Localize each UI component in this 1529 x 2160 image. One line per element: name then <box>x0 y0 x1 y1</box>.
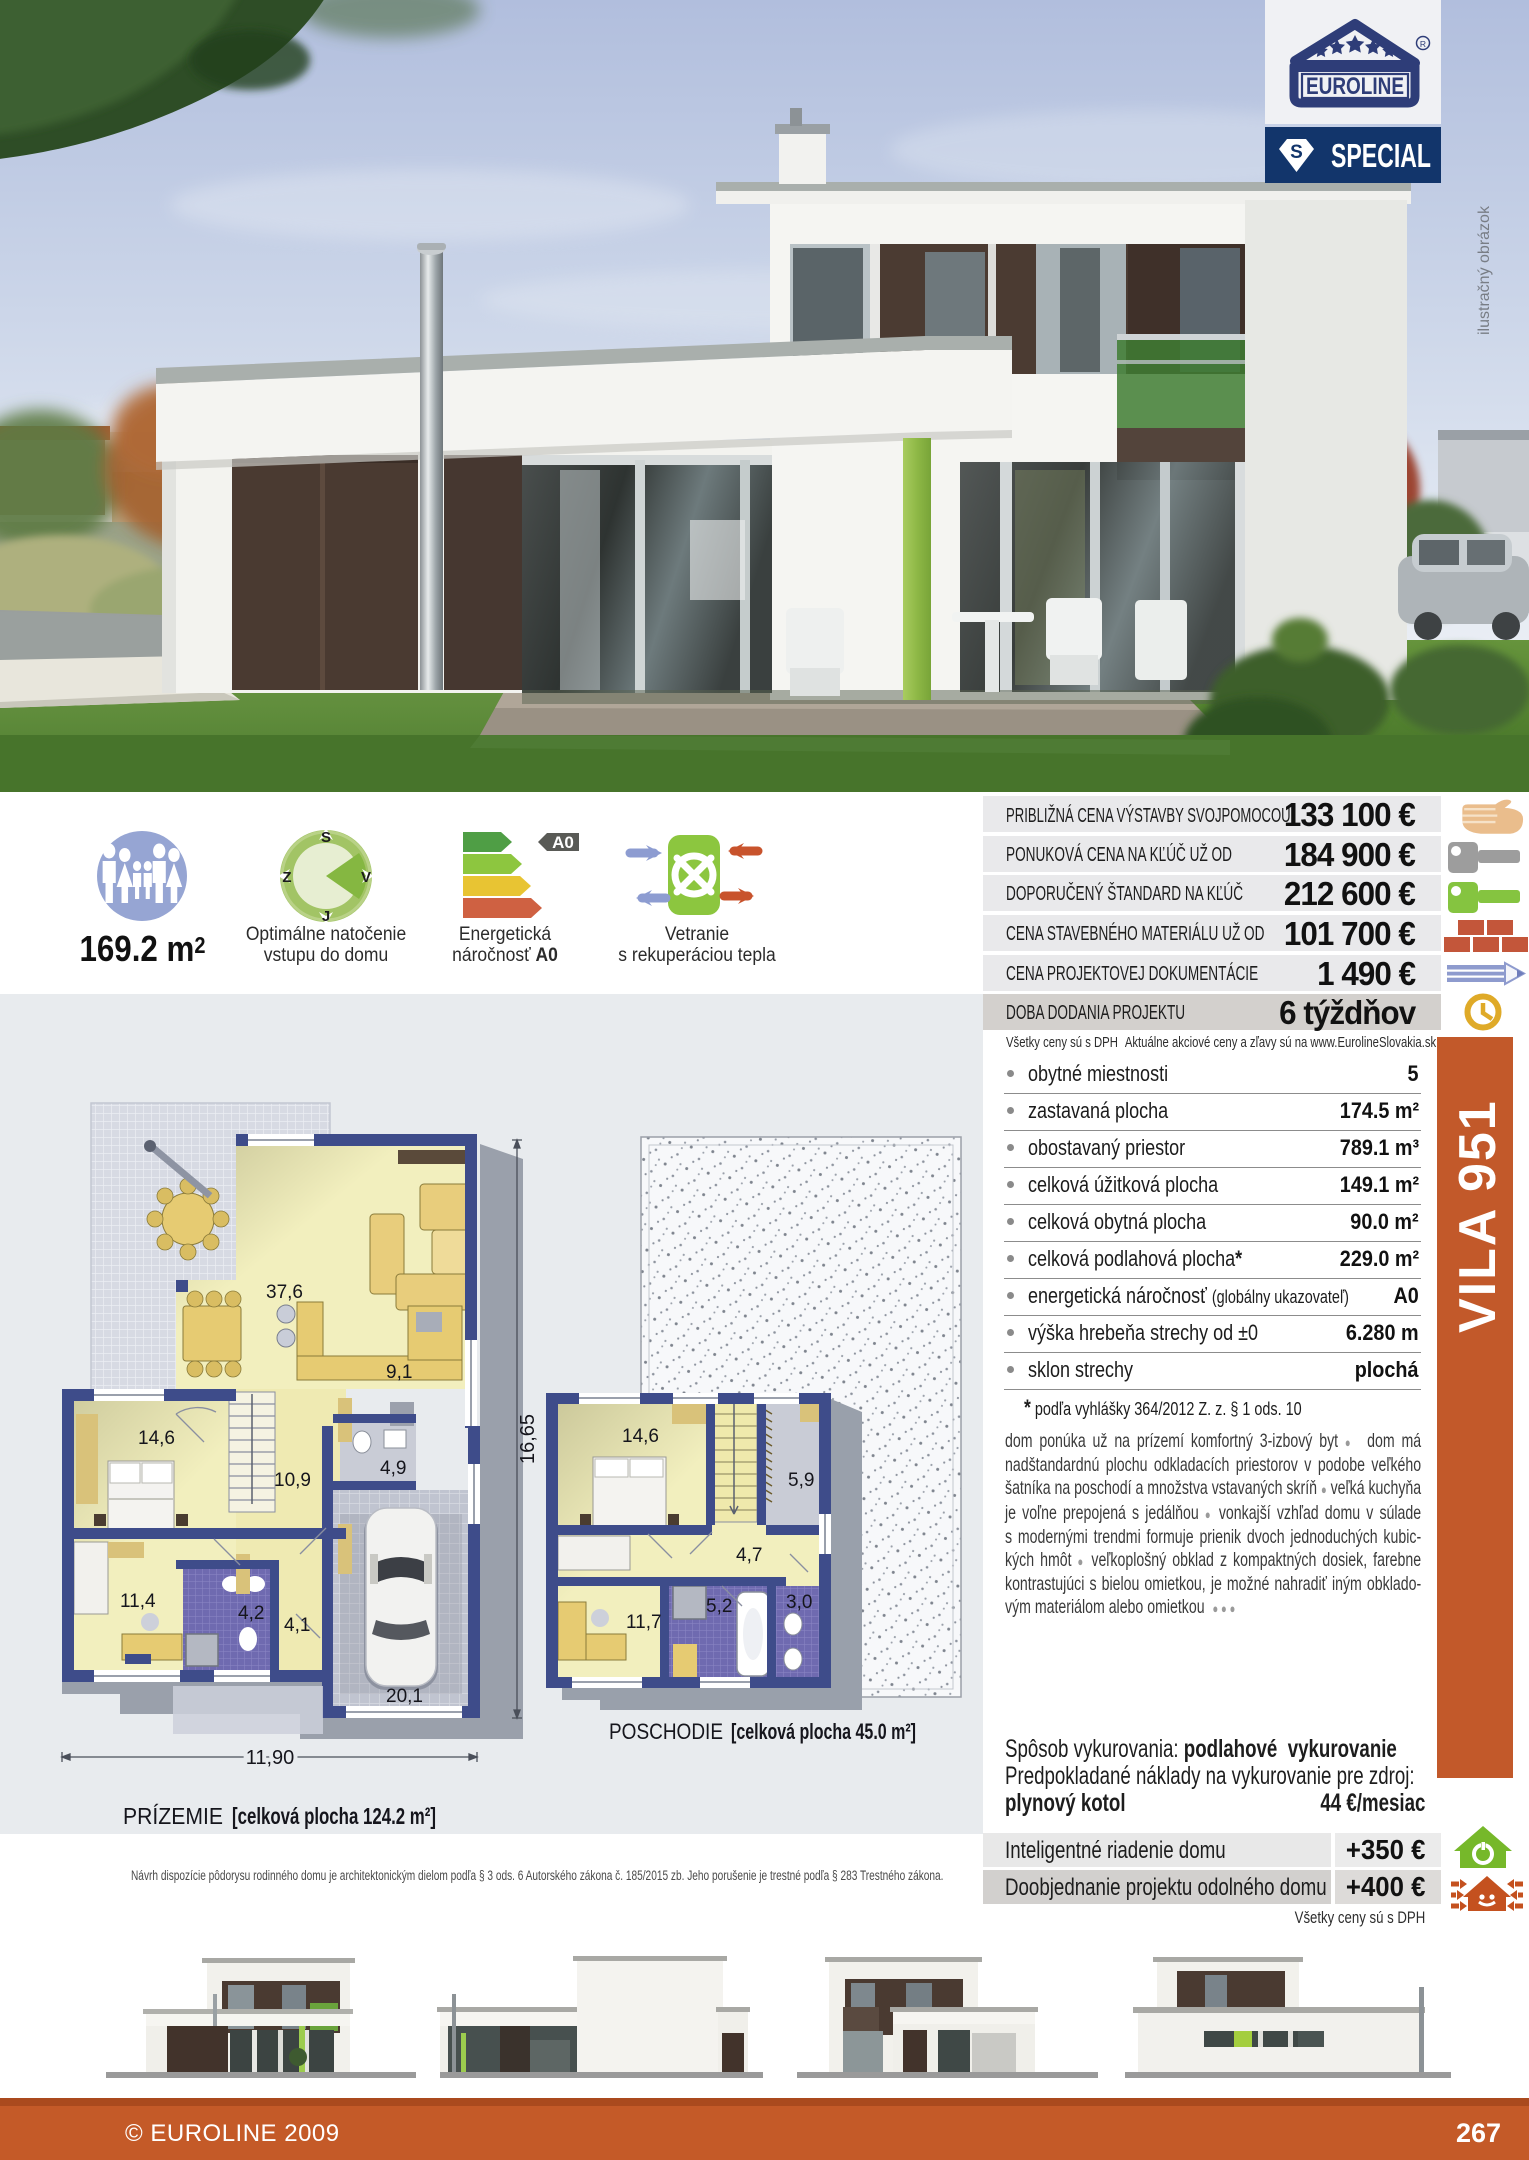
svg-text:J: J <box>322 908 330 925</box>
svg-text:EUROLINE: EUROLINE <box>1306 73 1404 100</box>
svg-text:37,6: 37,6 <box>266 1282 303 1303</box>
svg-text:4,2: 4,2 <box>238 1603 264 1624</box>
svg-text:4,7: 4,7 <box>736 1545 762 1566</box>
svg-text:POSCHODIE: POSCHODIE <box>609 1719 723 1744</box>
svg-text:9,1: 9,1 <box>386 1362 412 1383</box>
svg-text:11,90: 11,90 <box>246 1747 295 1769</box>
svg-text:3,0: 3,0 <box>786 1592 812 1613</box>
svg-text:S: S <box>1290 142 1303 163</box>
svg-text:PRÍZEMIE: PRÍZEMIE <box>123 1803 223 1829</box>
svg-text:10,9: 10,9 <box>274 1470 311 1491</box>
svg-text:S: S <box>321 829 331 846</box>
svg-text:[celková plocha 45.0 m²]: [celková plocha 45.0 m²] <box>731 1719 916 1744</box>
svg-text:4,9: 4,9 <box>380 1458 406 1479</box>
svg-text:5,2: 5,2 <box>706 1596 732 1617</box>
svg-text:11,4: 11,4 <box>120 1591 156 1612</box>
svg-text:Z: Z <box>282 869 291 886</box>
svg-text:11,7: 11,7 <box>626 1612 662 1633</box>
svg-text:5,9: 5,9 <box>788 1470 814 1491</box>
svg-text:A0: A0 <box>552 833 574 852</box>
svg-text:[celková plocha 124.2 m²]: [celková plocha 124.2 m²] <box>232 1803 436 1829</box>
svg-text:20,1: 20,1 <box>386 1686 423 1707</box>
svg-text:14,6: 14,6 <box>622 1426 659 1447</box>
svg-text:V: V <box>361 869 371 886</box>
svg-text:R: R <box>1420 39 1426 49</box>
svg-text:14,6: 14,6 <box>138 1428 175 1449</box>
svg-text:16,65: 16,65 <box>517 1414 539 1464</box>
svg-text:4,1: 4,1 <box>284 1615 310 1636</box>
svg-text:SPECIAL: SPECIAL <box>1331 137 1431 174</box>
